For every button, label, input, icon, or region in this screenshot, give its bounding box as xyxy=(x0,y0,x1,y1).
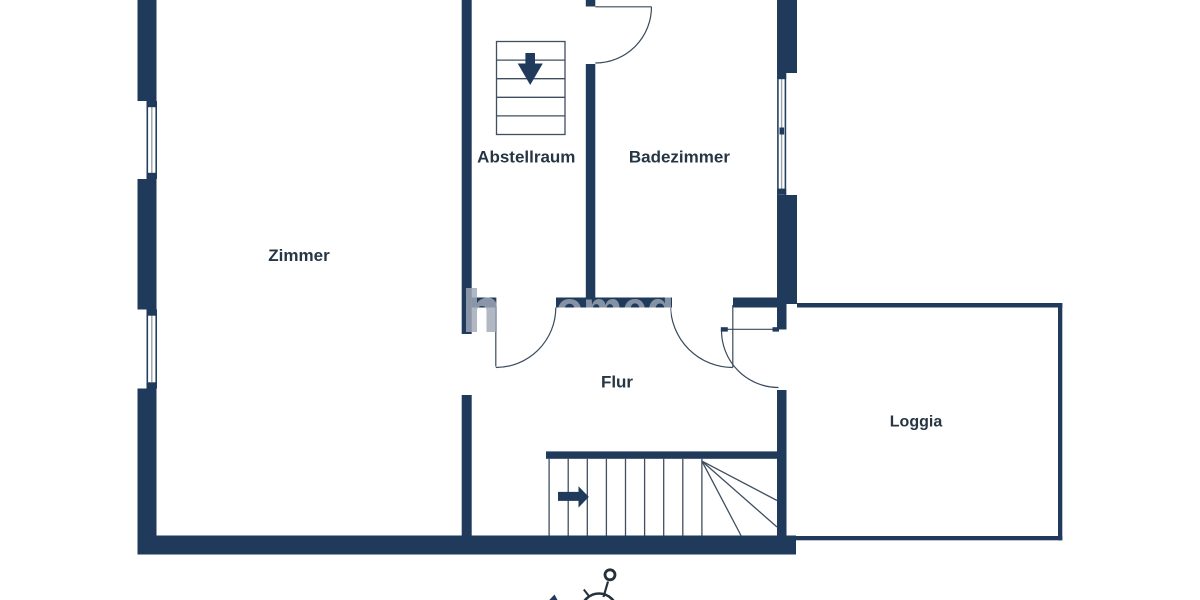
svg-text:Loggia: Loggia xyxy=(890,413,943,430)
svg-text:Abstellraum: Abstellraum xyxy=(477,148,575,167)
svg-text:Flur: Flur xyxy=(601,373,633,392)
svg-text:omed: omed xyxy=(556,281,674,337)
svg-text:Zimmer: Zimmer xyxy=(268,246,330,265)
svg-text:Badezimmer: Badezimmer xyxy=(629,148,730,167)
